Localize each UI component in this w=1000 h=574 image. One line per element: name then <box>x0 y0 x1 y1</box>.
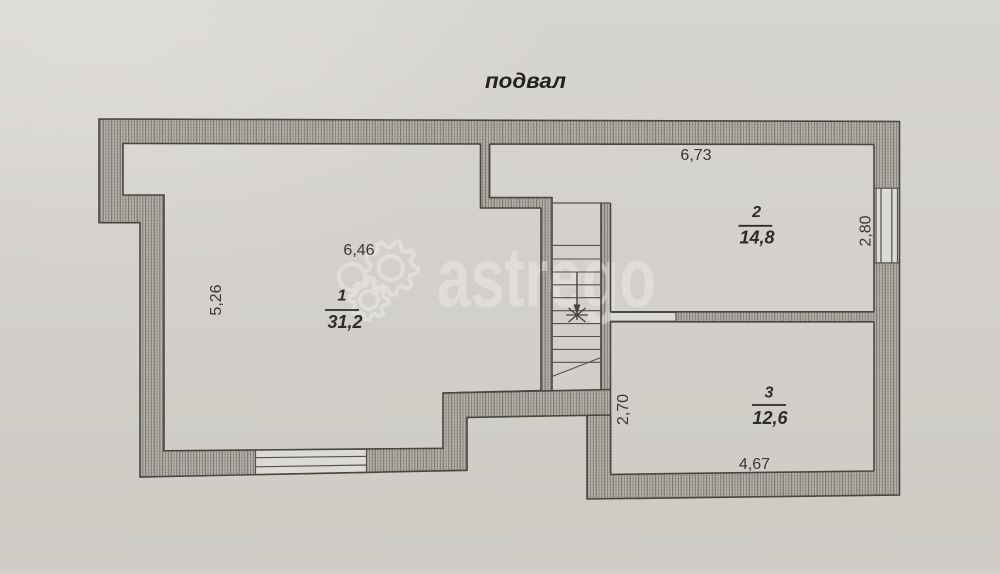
svg-text:31,2: 31,2 <box>327 312 362 332</box>
svg-text:6,73: 6,73 <box>680 147 711 164</box>
svg-text:3: 3 <box>765 385 774 402</box>
svg-text:12,6: 12,6 <box>752 408 788 428</box>
svg-text:2: 2 <box>751 204 761 221</box>
svg-text:5,26: 5,26 <box>208 284 225 315</box>
svg-text:2,80: 2,80 <box>858 215 875 246</box>
svg-text:2,70: 2,70 <box>615 394 632 425</box>
svg-text:1: 1 <box>338 288 347 305</box>
svg-text:astrego: astrego <box>437 231 656 325</box>
svg-text:4,67: 4,67 <box>739 456 770 473</box>
svg-text:14,8: 14,8 <box>739 228 774 248</box>
svg-text:подвал: подвал <box>485 69 566 93</box>
svg-text:6,46: 6,46 <box>343 242 374 259</box>
